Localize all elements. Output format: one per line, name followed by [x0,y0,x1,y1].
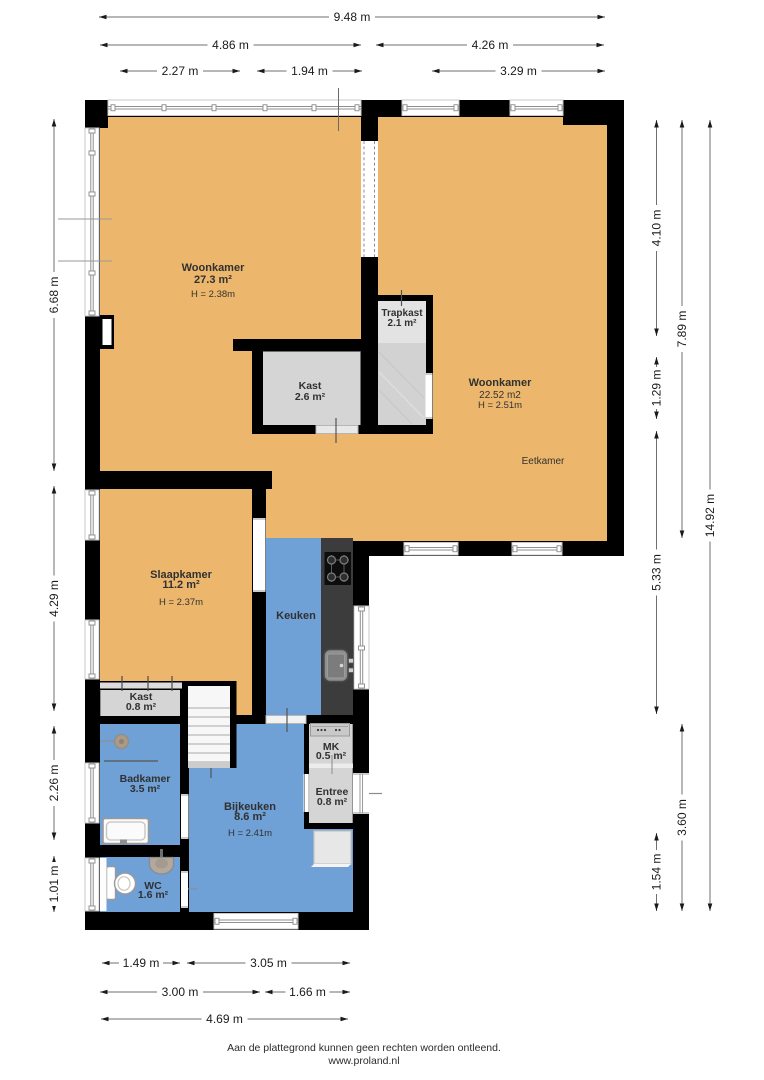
svg-text:2.26 m: 2.26 m [47,765,61,802]
svg-text:0.8 m²: 0.8 m² [126,701,157,713]
svg-text:2.27 m: 2.27 m [162,64,199,78]
svg-text:1.54 m: 1.54 m [650,854,664,891]
svg-text:Woonkamer: Woonkamer [469,377,532,389]
svg-text:0.8 m²: 0.8 m² [317,796,348,808]
svg-text:4.29 m: 4.29 m [47,580,61,617]
svg-text:1.01 m: 1.01 m [47,866,61,903]
svg-text:8.6 m²: 8.6 m² [234,811,266,823]
svg-text:H = 2.41m: H = 2.41m [228,828,272,839]
svg-text:4.69 m: 4.69 m [206,1012,243,1026]
svg-text:4.10 m: 4.10 m [650,210,664,247]
svg-text:3.29 m: 3.29 m [500,64,537,78]
svg-text:3.60 m: 3.60 m [675,799,689,836]
svg-text:3.05 m: 3.05 m [250,956,287,970]
svg-text:3.00 m: 3.00 m [162,985,199,999]
svg-text:H = 2.38m: H = 2.38m [191,289,235,300]
svg-text:H = 2.51m: H = 2.51m [478,400,522,411]
svg-text:14.92 m: 14.92 m [703,494,717,537]
svg-text:6.68 m: 6.68 m [47,277,61,314]
svg-text:Keuken: Keuken [276,610,316,622]
svg-text:5.33 m: 5.33 m [650,554,664,591]
svg-text:4.26 m: 4.26 m [472,38,509,52]
svg-text:1.49 m: 1.49 m [123,956,160,970]
svg-text:1.94 m: 1.94 m [291,64,328,78]
svg-text:27.3 m²: 27.3 m² [194,274,232,286]
svg-text:9.48 m: 9.48 m [334,10,371,24]
svg-text:7.89 m: 7.89 m [675,311,689,348]
svg-text:1.6 m²: 1.6 m² [138,889,169,901]
svg-text:1.66 m: 1.66 m [289,985,326,999]
svg-text:0.5 m²: 0.5 m² [316,750,347,762]
svg-text:2.1 m²: 2.1 m² [388,318,418,329]
svg-text:3.5 m²: 3.5 m² [130,783,161,795]
svg-text:Eetkamer: Eetkamer [522,456,565,467]
svg-text:Woonkamer: Woonkamer [182,262,245,274]
svg-text:H = 2.37m: H = 2.37m [159,597,203,608]
svg-text:4.86 m: 4.86 m [212,38,249,52]
svg-text:1.29 m: 1.29 m [650,370,664,407]
svg-text:11.2 m²: 11.2 m² [162,579,200,591]
svg-text:2.6 m²: 2.6 m² [295,391,326,403]
svg-text:Aan de plattegrond kunnen geen: Aan de plattegrond kunnen geen rechten w… [227,1042,501,1054]
svg-text:www.proland.nl: www.proland.nl [327,1055,399,1067]
